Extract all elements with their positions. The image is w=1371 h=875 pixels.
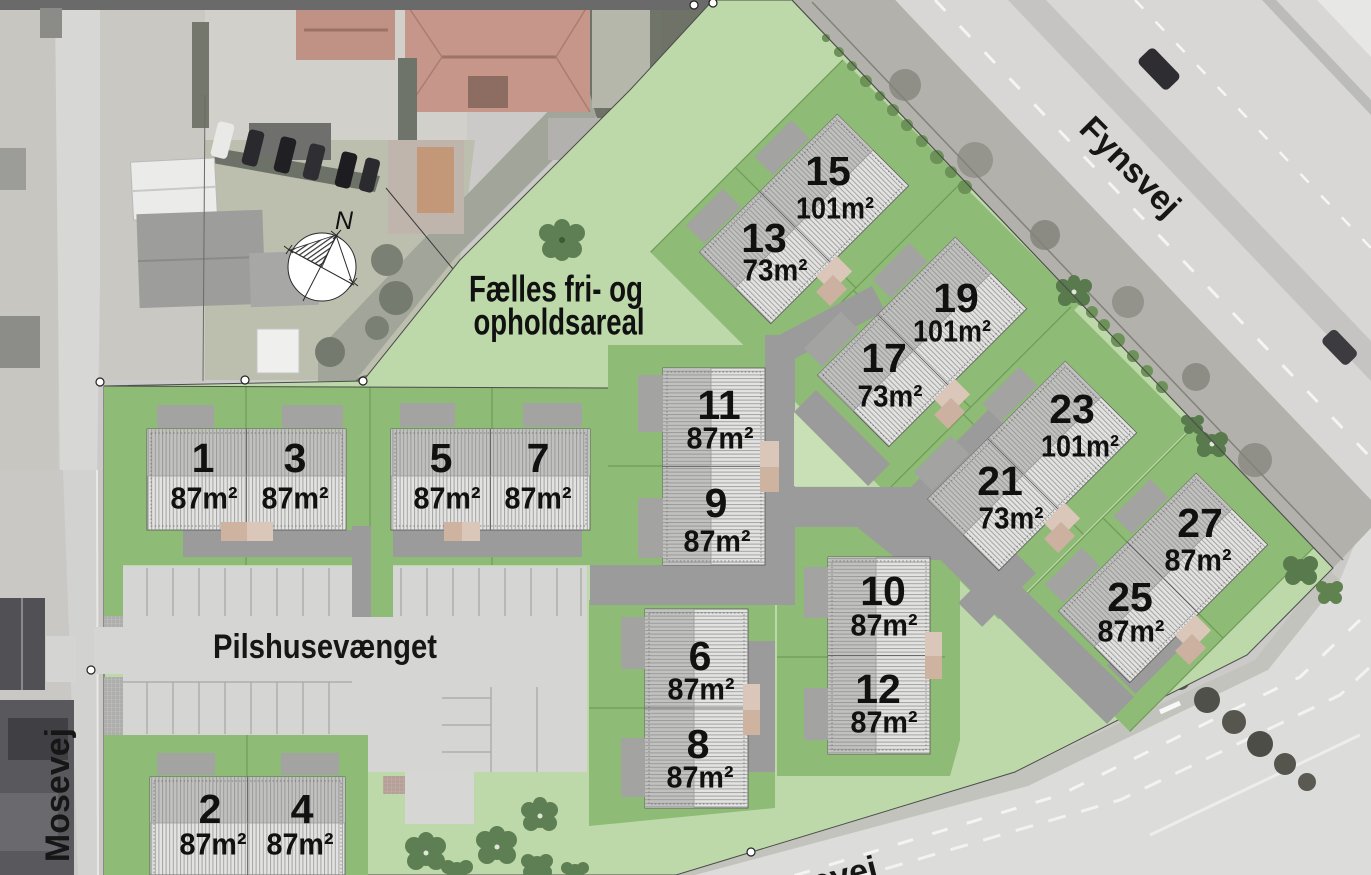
svg-text:21: 21 — [977, 458, 1023, 504]
svg-text:87m²: 87m² — [668, 672, 735, 707]
svg-text:101m²: 101m² — [913, 314, 991, 349]
svg-text:73m²: 73m² — [743, 253, 808, 288]
svg-text:23: 23 — [1049, 386, 1095, 432]
svg-text:87m²: 87m² — [414, 481, 481, 516]
svg-text:101m²: 101m² — [796, 191, 874, 226]
svg-text:27: 27 — [1177, 500, 1223, 546]
svg-text:87m²: 87m² — [180, 827, 247, 862]
svg-text:7: 7 — [527, 435, 550, 481]
svg-text:87m²: 87m² — [687, 421, 754, 456]
svg-text:87m²: 87m² — [171, 481, 238, 516]
svg-text:9: 9 — [705, 480, 728, 526]
svg-text:73m²: 73m² — [858, 379, 923, 414]
svg-text:15: 15 — [805, 148, 851, 194]
svg-text:87m²: 87m² — [667, 760, 734, 795]
svg-text:1: 1 — [192, 435, 215, 481]
svg-text:87m²: 87m² — [851, 705, 918, 740]
svg-text:87m²: 87m² — [851, 608, 918, 643]
svg-text:N: N — [335, 207, 354, 235]
svg-text:87m²: 87m² — [684, 524, 751, 559]
svg-text:87m²: 87m² — [267, 827, 334, 862]
svg-text:73m²: 73m² — [979, 501, 1044, 536]
svg-text:2: 2 — [199, 786, 222, 832]
svg-text:87m²: 87m² — [1098, 614, 1165, 649]
svg-text:5: 5 — [430, 435, 453, 481]
svg-text:87m²: 87m² — [1165, 543, 1232, 578]
svg-text:4: 4 — [291, 786, 314, 832]
svg-text:3: 3 — [284, 435, 307, 481]
svg-text:17: 17 — [861, 335, 907, 381]
svg-text:Pilshusevænget: Pilshusevænget — [213, 628, 437, 666]
svg-text:Mosevej: Mosevej — [39, 728, 77, 862]
svg-text:101m²: 101m² — [1041, 429, 1119, 464]
svg-text:opholdsareal: opholdsareal — [474, 302, 645, 343]
svg-text:87m²: 87m² — [262, 481, 329, 516]
svg-text:87m²: 87m² — [505, 481, 572, 516]
